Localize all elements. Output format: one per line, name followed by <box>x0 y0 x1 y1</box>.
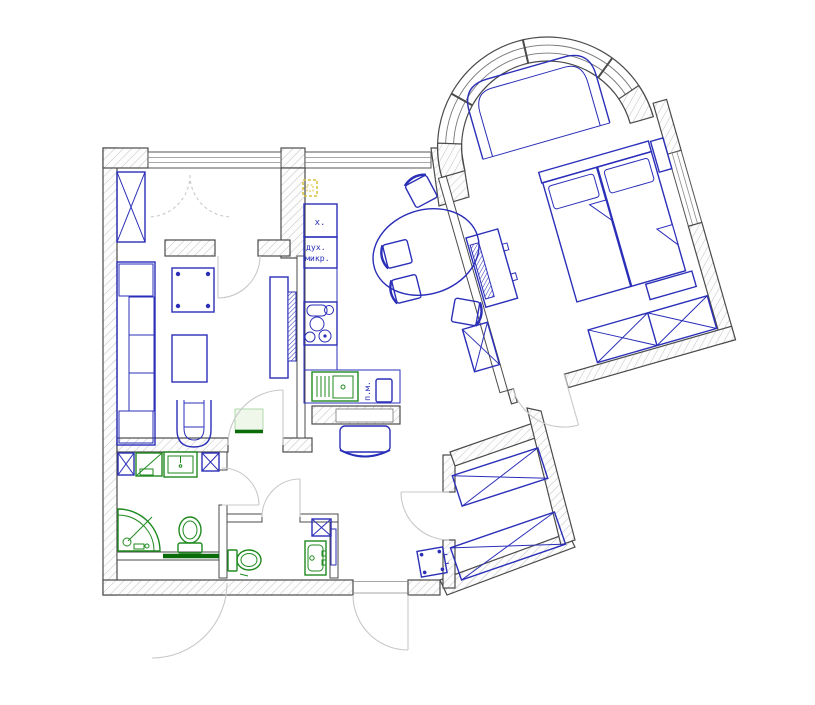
nook-living-door-arc <box>218 256 260 298</box>
square-table <box>172 268 214 312</box>
blanket-fold-right <box>657 225 678 250</box>
wc-basin <box>305 541 326 575</box>
nook-living-wall-left <box>165 240 215 256</box>
shaft-box-left <box>118 453 134 475</box>
living-room <box>117 262 296 447</box>
top-wall-pier-middle <box>281 148 305 168</box>
hall-chair <box>340 426 390 457</box>
wc <box>228 479 336 576</box>
wc-door-arc <box>262 479 300 517</box>
wc-top-wall-left <box>227 514 262 522</box>
sofa-armrest-top <box>119 264 153 296</box>
kitchen-counter <box>304 345 337 370</box>
closet-right-wall <box>527 408 575 545</box>
window-nook <box>148 152 281 168</box>
bathroom-right-wall-lower <box>219 505 227 578</box>
closet-door-arc <box>401 492 449 540</box>
entrance-door-arc <box>353 595 408 650</box>
washing-machine: п.м. <box>362 379 392 402</box>
dining-chair-1 <box>403 172 438 208</box>
tv-cabinet <box>270 277 296 378</box>
bedroom-right-window <box>668 150 702 226</box>
top-wall-pier-left <box>103 148 148 168</box>
nook-door-arc-right <box>190 175 232 217</box>
nook-living-wall-right <box>258 240 290 256</box>
bottom-wall-left <box>103 580 353 595</box>
outer-wall-left <box>103 148 117 595</box>
coffee-table <box>172 335 207 382</box>
bedroom-right-wall-upper <box>653 99 681 154</box>
dining-chair-3 <box>388 274 421 304</box>
tv <box>288 292 296 361</box>
stove <box>304 302 337 345</box>
bay-window <box>412 11 654 177</box>
shower-drain-icon <box>123 538 131 546</box>
dining-chair-4 <box>451 298 483 327</box>
dining-chair-2 <box>379 239 412 269</box>
corner-shower <box>118 509 160 551</box>
bedroom-door-arc <box>513 389 579 427</box>
washbasin <box>164 452 197 477</box>
wc-toilet <box>228 550 261 576</box>
nook-door-arc-left <box>148 175 190 217</box>
label-oven: дух. <box>306 242 326 252</box>
bathroom <box>118 452 259 553</box>
window-kitchen <box>305 152 431 168</box>
electrical-box-inner <box>307 185 313 191</box>
floorplan-page: х. дух. микр. п.м. <box>0 0 815 705</box>
living-bottom-wall-right <box>283 438 312 452</box>
bottom-wall-right <box>408 580 440 595</box>
kitchen-sink <box>312 372 358 401</box>
floorplan-canvas: х. дух. микр. п.м. <box>0 0 815 705</box>
bathroom-right-wall-upper <box>219 452 227 470</box>
kitchen-cabinet <box>304 268 337 302</box>
wc-top-wall-right <box>300 514 338 522</box>
bath-cabinet <box>136 453 162 476</box>
nook <box>117 172 260 298</box>
shower-mixer-icon <box>134 544 144 549</box>
shaft-box-right <box>202 453 219 471</box>
kitchen-south-wall-panel <box>336 409 393 422</box>
bedroom-left-wall <box>438 176 507 393</box>
bay-bench-sofa <box>462 50 610 159</box>
bedroom-block <box>408 6 735 406</box>
label-fridge: х. <box>315 218 326 228</box>
label-microwave: микр. <box>305 253 330 263</box>
label-washing-machine: п.м. <box>362 381 372 401</box>
nook-wardrobe <box>117 172 145 242</box>
closet-top-wall <box>450 422 541 466</box>
double-bed <box>539 141 686 302</box>
sofa <box>117 262 155 445</box>
bay-mullion-center <box>522 40 530 63</box>
bathroom-door-arc <box>222 468 259 505</box>
bathroom-toilet <box>178 517 202 553</box>
